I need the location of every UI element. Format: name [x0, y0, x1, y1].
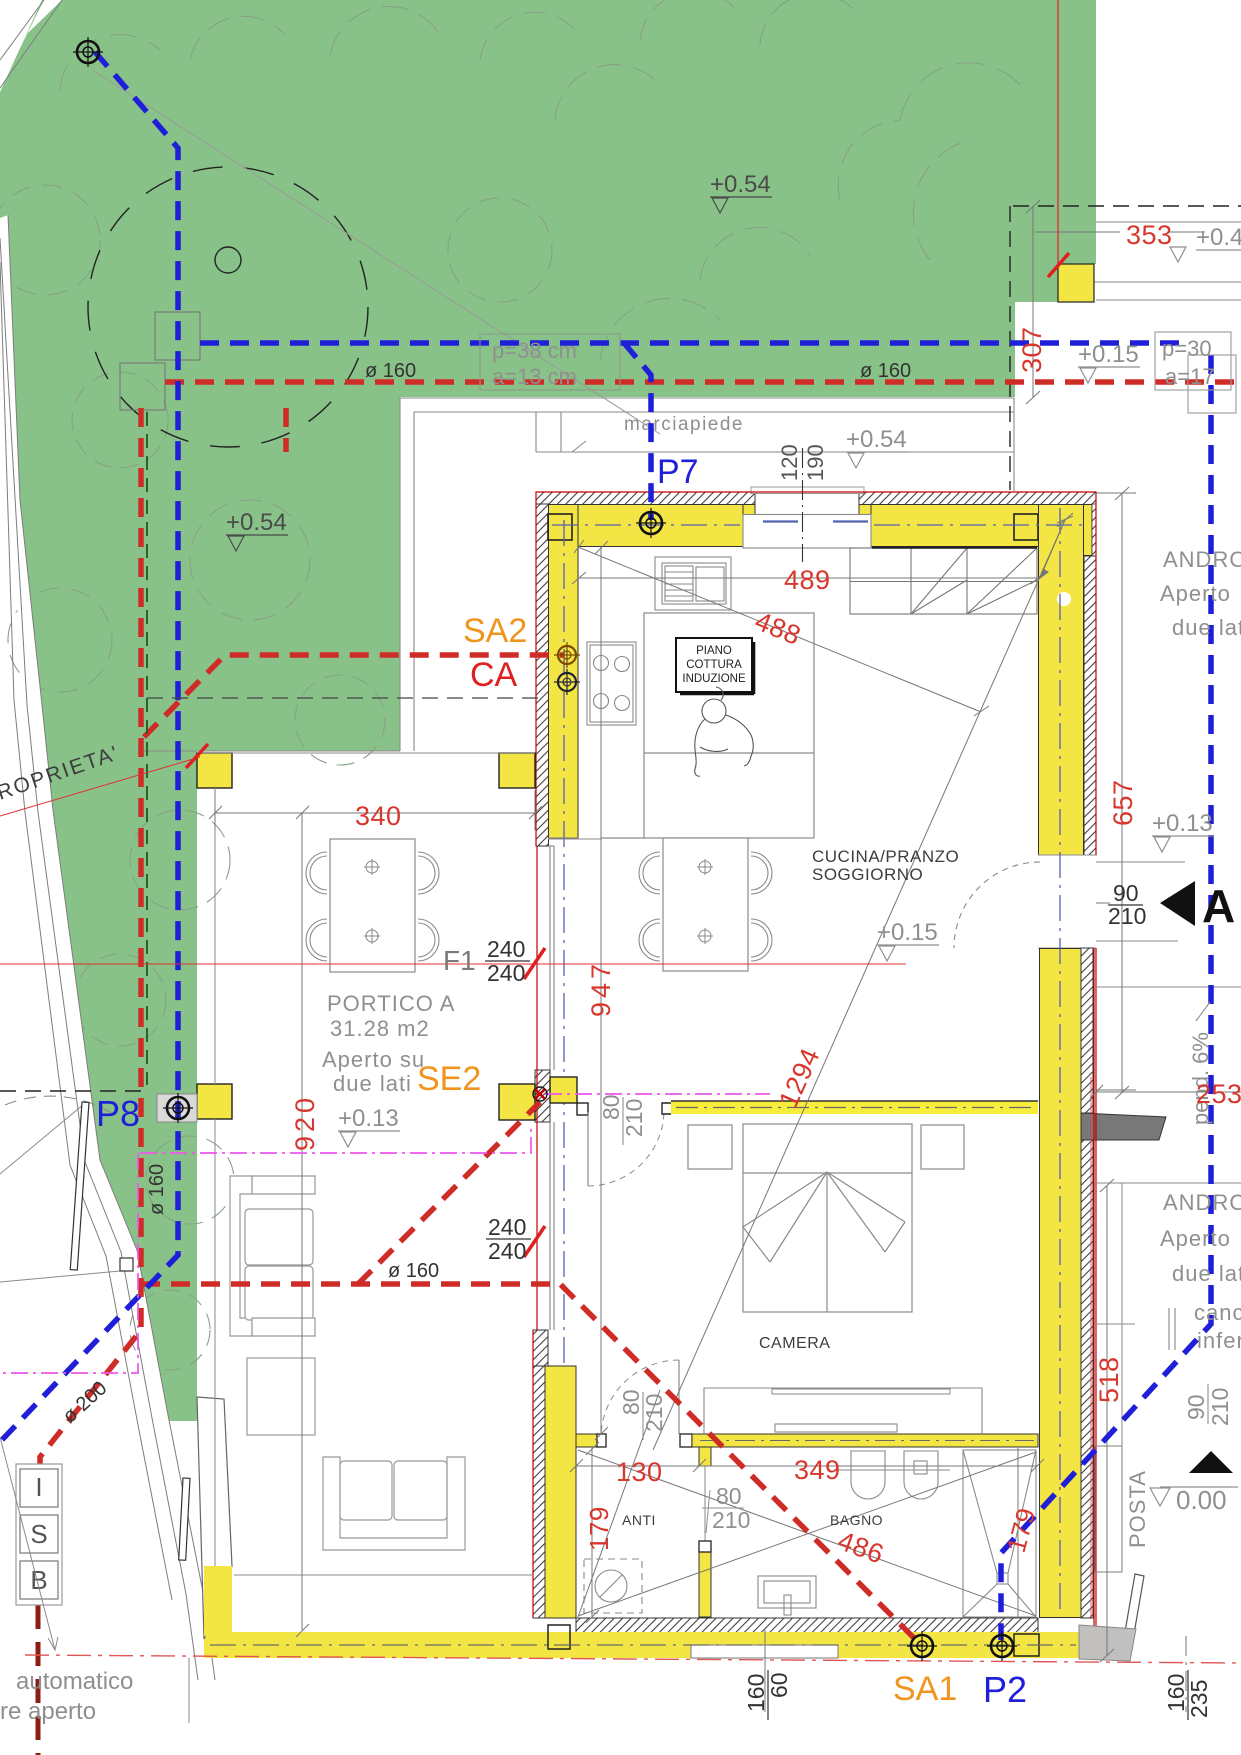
svg-text:657: 657 — [1108, 779, 1138, 826]
svg-text:infer: infer — [1197, 1328, 1241, 1353]
svg-text:P8: P8 — [96, 1093, 140, 1134]
svg-text:Aperto: Aperto — [1160, 1226, 1231, 1251]
svg-text:+0.15: +0.15 — [1078, 341, 1139, 368]
svg-text:+0.13: +0.13 — [1152, 810, 1213, 837]
svg-text:0.00: 0.00 — [1176, 1485, 1227, 1515]
svg-text:349: 349 — [794, 1455, 841, 1485]
svg-text:BAGNO: BAGNO — [830, 1512, 883, 1528]
svg-text:489: 489 — [784, 565, 831, 595]
svg-text:due lati: due lati — [1172, 615, 1241, 640]
svg-text:235: 235 — [1186, 1680, 1212, 1718]
svg-text:CUCINA/PRANZO: CUCINA/PRANZO — [812, 847, 959, 866]
svg-text:INDUZIONE: INDUZIONE — [682, 673, 746, 685]
svg-text:307: 307 — [1017, 326, 1047, 373]
svg-text:Aperto: Aperto — [1160, 581, 1231, 606]
svg-text:F1: F1 — [443, 945, 476, 976]
svg-text:CAMERA: CAMERA — [759, 1335, 830, 1352]
svg-text:90: 90 — [1183, 1394, 1209, 1420]
svg-text:240: 240 — [488, 1214, 526, 1240]
svg-text:210: 210 — [621, 1099, 647, 1137]
svg-text:80: 80 — [716, 1483, 742, 1509]
svg-text:+0.54: +0.54 — [710, 171, 771, 198]
svg-text:ANTI: ANTI — [622, 1512, 656, 1528]
svg-text:PIANO: PIANO — [696, 645, 732, 657]
svg-text:210: 210 — [641, 1394, 667, 1432]
svg-text:P7: P7 — [657, 453, 699, 491]
svg-text:ø 160: ø 160 — [146, 1164, 168, 1215]
svg-text:340: 340 — [355, 801, 402, 831]
svg-text:marciapiede: marciapiede — [624, 414, 744, 435]
svg-text:B: B — [30, 1565, 47, 1595]
svg-text:due lati: due lati — [333, 1071, 412, 1096]
svg-text:210: 210 — [1207, 1388, 1233, 1426]
svg-text:S: S — [30, 1519, 47, 1549]
svg-text:253: 253 — [1196, 1079, 1241, 1109]
svg-text:canc: canc — [1194, 1300, 1241, 1325]
svg-text:due lati: due lati — [1172, 1261, 1241, 1286]
svg-text:ANDRONE: ANDRONE — [1163, 1190, 1241, 1215]
svg-text:240: 240 — [487, 960, 525, 986]
svg-text:+0.54: +0.54 — [226, 509, 287, 536]
svg-text:a=17: a=17 — [1165, 364, 1215, 389]
svg-text:p=38 cm: p=38 cm — [492, 338, 577, 363]
svg-text:+0.4: +0.4 — [1196, 224, 1241, 251]
svg-text:130: 130 — [616, 1457, 663, 1487]
svg-text:ø 160: ø 160 — [860, 360, 911, 382]
svg-text:120: 120 — [777, 444, 802, 481]
svg-text:P2: P2 — [983, 1669, 1027, 1710]
svg-text:re aperto: re aperto — [0, 1698, 96, 1725]
svg-text:I: I — [35, 1472, 42, 1502]
svg-text:SA1: SA1 — [893, 1670, 957, 1708]
svg-text:POSTA: POSTA — [1125, 1470, 1150, 1548]
svg-text:PORTICO A: PORTICO A — [327, 991, 455, 1016]
svg-text:+0.13: +0.13 — [338, 1105, 399, 1132]
svg-text:+0.15: +0.15 — [877, 919, 938, 946]
svg-text:190: 190 — [803, 444, 828, 481]
svg-text:ANDRONE: ANDRONE — [1163, 547, 1241, 572]
svg-text:+0.54: +0.54 — [846, 426, 907, 453]
svg-text:SE2: SE2 — [417, 1060, 481, 1098]
svg-text:CA: CA — [470, 656, 518, 694]
svg-text:ø 160: ø 160 — [365, 360, 416, 382]
svg-text:179: 179 — [584, 1506, 614, 1551]
svg-text:353: 353 — [1126, 220, 1173, 250]
svg-text:240: 240 — [487, 936, 525, 962]
svg-text:SOGGIORNO: SOGGIORNO — [812, 865, 923, 884]
svg-text:automatico: automatico — [16, 1668, 133, 1695]
svg-text:COTTURA: COTTURA — [686, 659, 742, 671]
svg-text:p=30: p=30 — [1162, 336, 1212, 361]
svg-text:31.28 m2: 31.28 m2 — [330, 1016, 430, 1041]
svg-text:SA2: SA2 — [463, 612, 527, 650]
svg-text:920: 920 — [290, 1094, 320, 1151]
svg-text:947: 947 — [586, 960, 616, 1017]
svg-text:A: A — [1202, 880, 1235, 932]
svg-text:518: 518 — [1094, 1356, 1124, 1403]
svg-text:210: 210 — [712, 1507, 750, 1533]
svg-text:60: 60 — [766, 1672, 792, 1698]
svg-text:210: 210 — [1108, 903, 1146, 929]
svg-text:a=13 cm: a=13 cm — [492, 364, 577, 389]
svg-text:ø 160: ø 160 — [388, 1260, 439, 1282]
svg-text:240: 240 — [488, 1238, 526, 1264]
svg-text:Aperto su: Aperto su — [322, 1047, 425, 1072]
